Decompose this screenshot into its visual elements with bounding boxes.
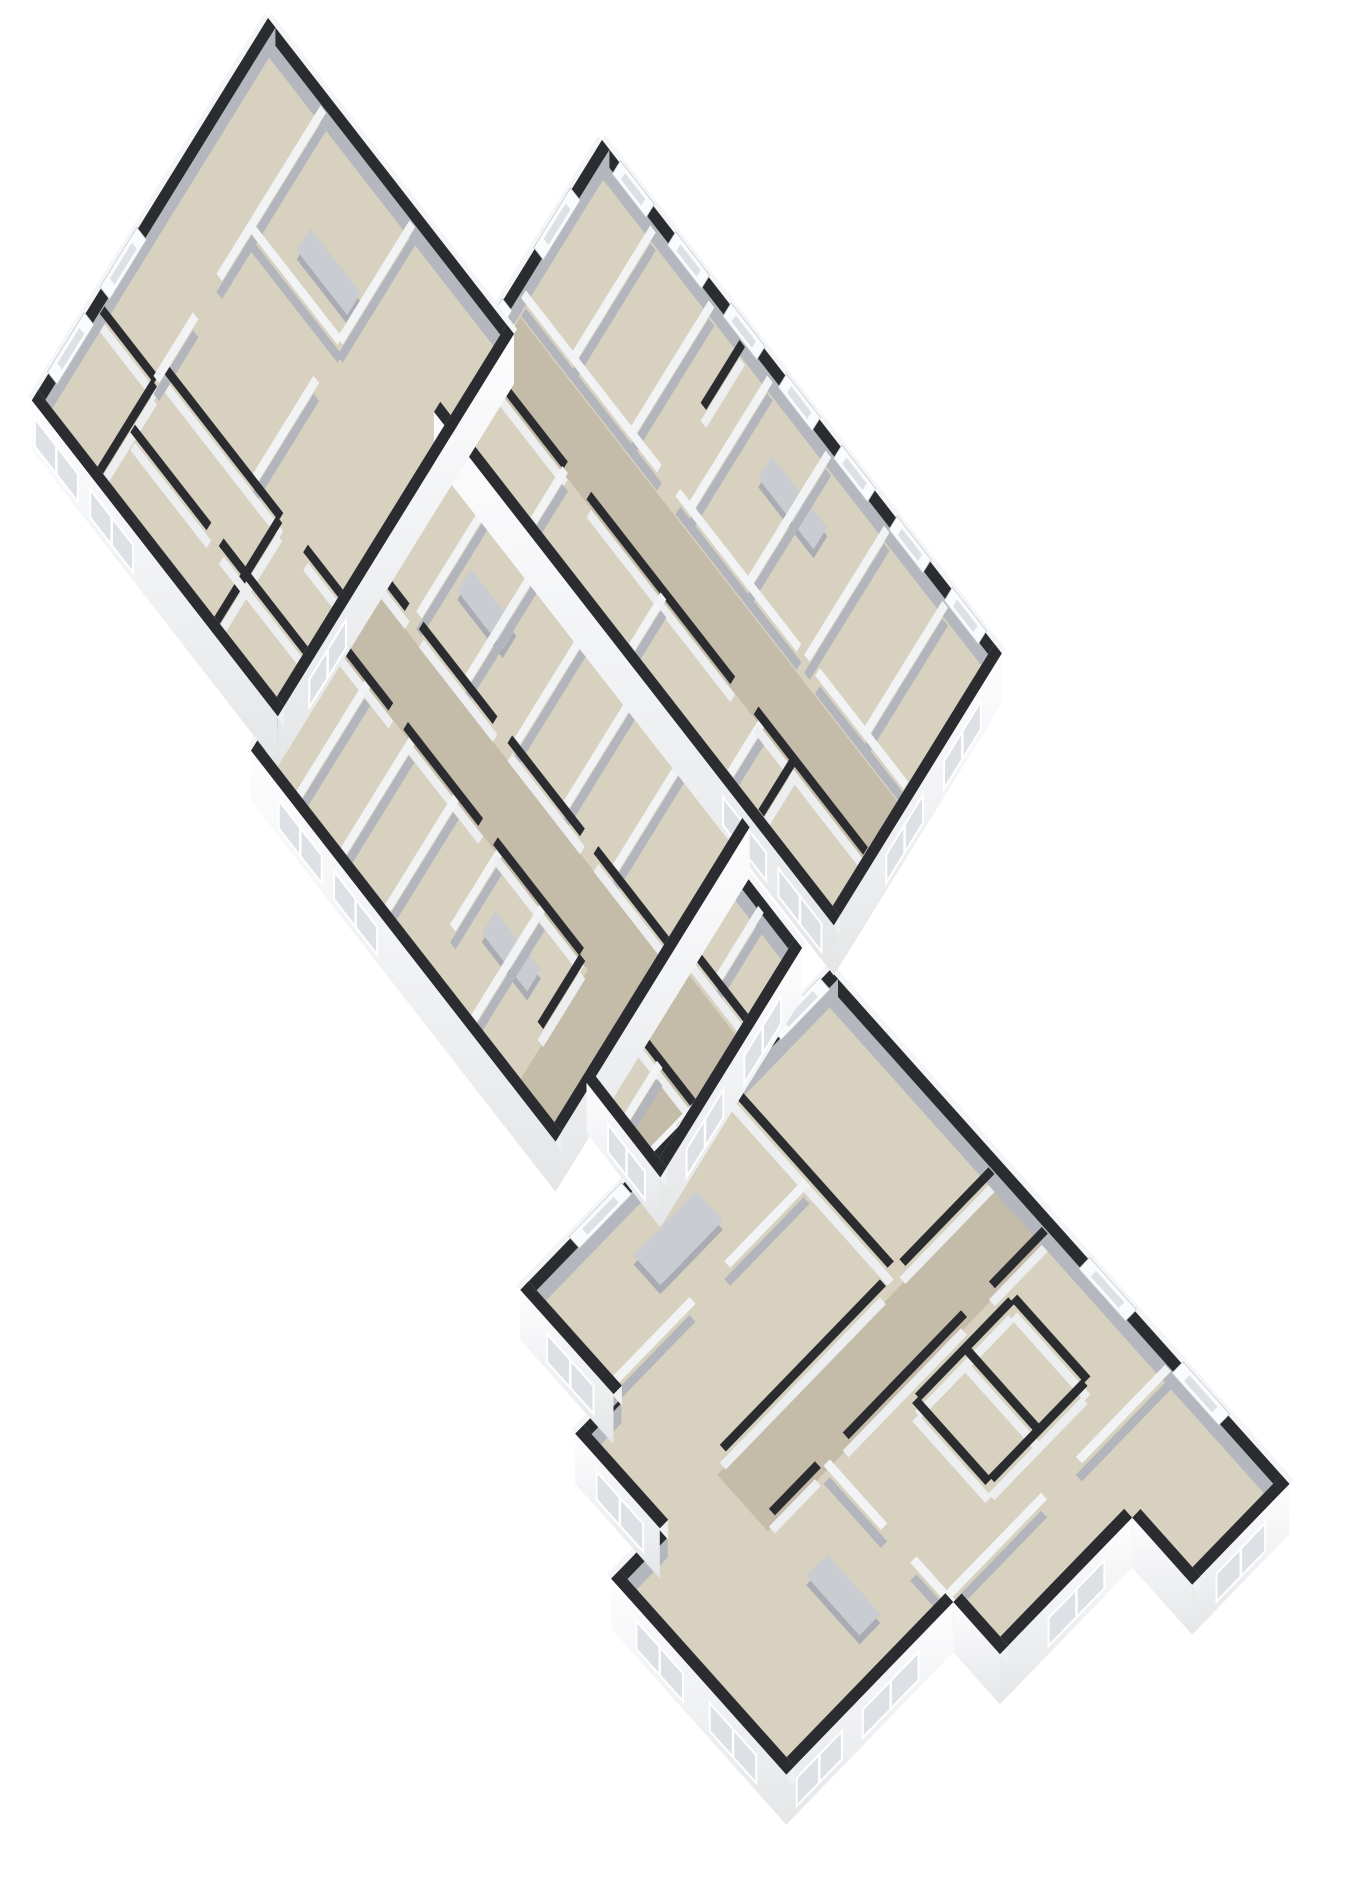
floorplan-stage: [0, 0, 1345, 1900]
building: [28, 13, 1294, 1825]
floorplan-render: [0, 0, 1345, 1900]
